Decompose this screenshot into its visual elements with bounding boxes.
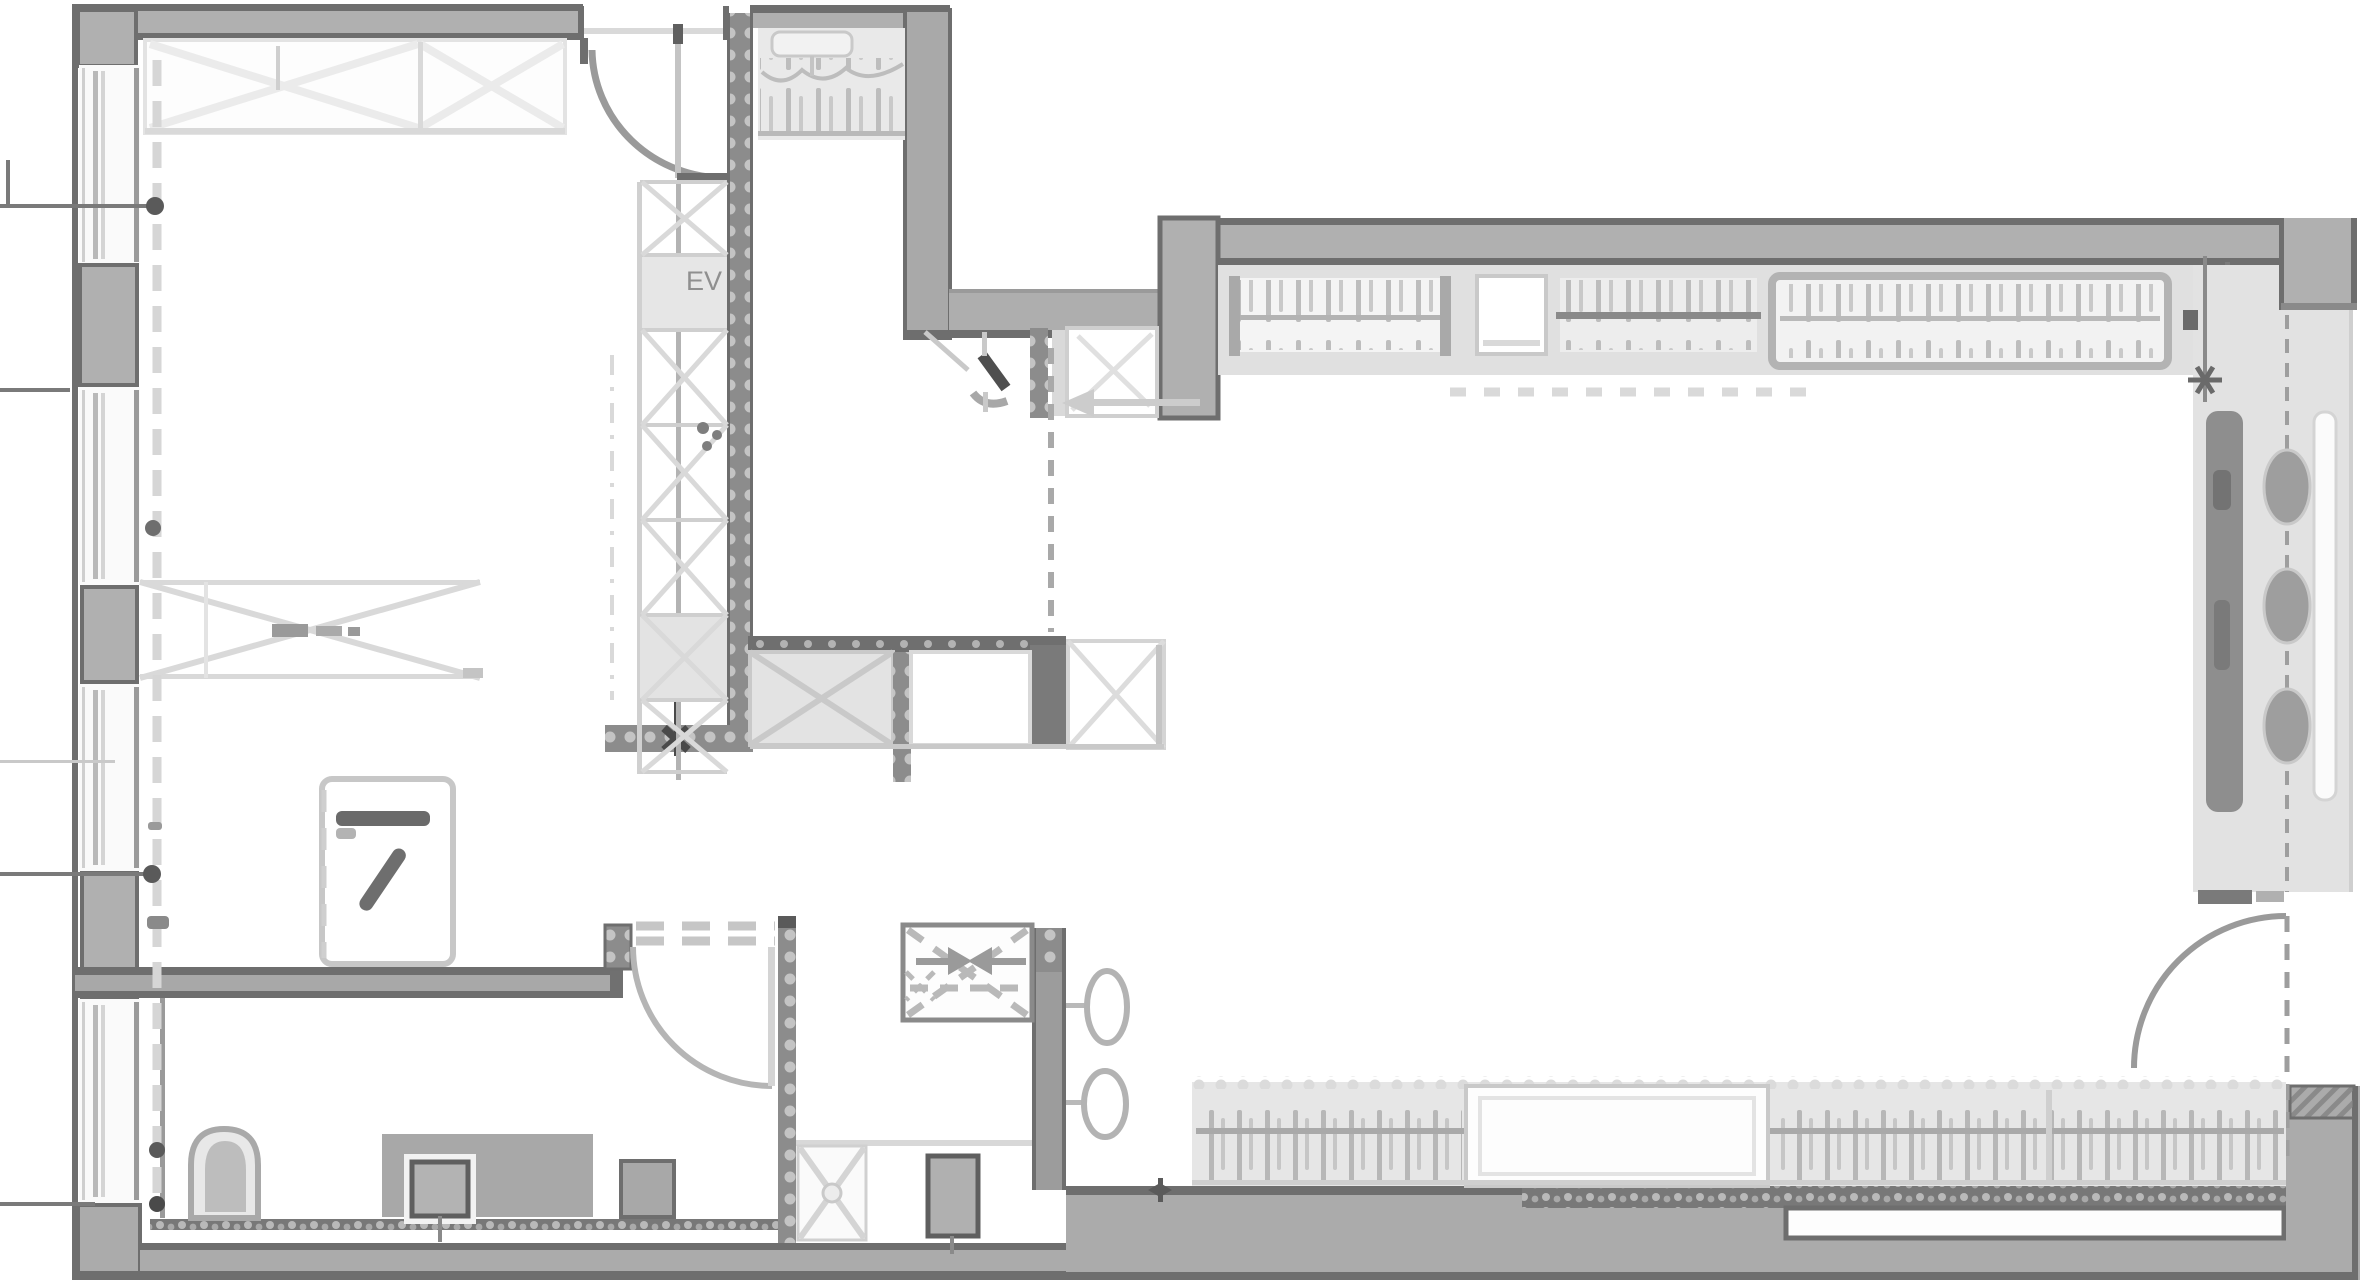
svg-text:EV: EV — [686, 266, 722, 296]
